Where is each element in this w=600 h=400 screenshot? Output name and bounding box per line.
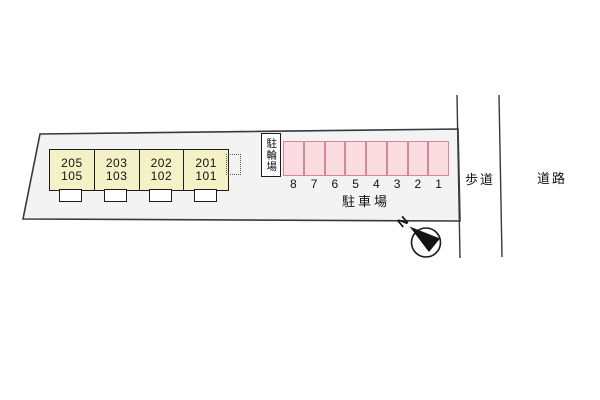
unit-number-lower: 105 [61, 170, 83, 183]
entrance-porch [149, 189, 172, 202]
apartment-building: 205 105 203 103 202 102 201 101 [49, 149, 229, 191]
unit-number-lower: 101 [195, 170, 217, 183]
parking-space-number: 3 [387, 177, 408, 190]
parking-space-5 [345, 141, 366, 176]
parking-space-6 [325, 141, 346, 176]
entrance-porch [59, 189, 82, 202]
building-unit-201-101: 201 101 [183, 150, 228, 190]
parking-space-4 [366, 141, 387, 176]
building-unit-205-105: 205 105 [50, 150, 94, 190]
parking-space-8 [283, 141, 304, 176]
parking-space-number: 7 [304, 177, 325, 190]
parking-space-number: 5 [345, 177, 366, 190]
entrance-porch [194, 189, 217, 202]
parking-space-number: 6 [325, 177, 346, 190]
bicycle-parking-box: 駐輪場 [261, 133, 281, 177]
parking-spaces [283, 141, 449, 176]
parking-space-7 [304, 141, 325, 176]
dashed-annex-outline [226, 154, 241, 175]
parking-space-1 [428, 141, 449, 176]
building-unit-202-102: 202 102 [139, 150, 184, 190]
parking-space-number: 1 [428, 177, 449, 190]
unit-number-lower: 103 [106, 170, 128, 183]
building-unit-203-103: 203 103 [94, 150, 139, 190]
site-layout-plan: 205 105 203 103 202 102 201 101 駐輪場 [0, 0, 600, 400]
bicycle-parking-label: 駐輪場 [266, 138, 277, 173]
sidewalk-label: 歩道 [458, 169, 502, 188]
parking-space-number: 4 [366, 177, 387, 190]
road-label: 道路 [504, 168, 600, 187]
parking-space-number: 8 [283, 177, 304, 190]
entrance-porch [104, 189, 127, 202]
parking-space-3 [387, 141, 408, 176]
north-compass-icon [410, 227, 441, 258]
unit-number-lower: 102 [151, 170, 173, 183]
parking-area-label: 駐車場 [283, 191, 449, 210]
parking-space-numbers: 8 7 6 5 4 3 2 1 [283, 177, 449, 190]
parking-space-number: 2 [408, 177, 429, 190]
parking-space-2 [408, 141, 429, 176]
